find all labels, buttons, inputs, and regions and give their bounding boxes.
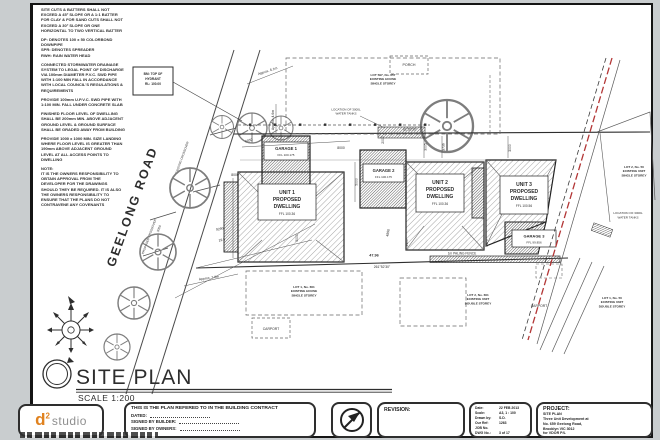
water-tanks-right-line1: LOCATION OF 3000L [613,211,643,215]
contract-dated-label: DATED: [131,413,147,418]
info-dwgno-label: DWG No.: [475,431,499,436]
unit3-line3: DWELLING [511,196,538,202]
carport-label-2: CARPORT [531,304,548,308]
lot1-50-line3: DOUBLE STOREY [599,304,627,308]
note-paragraph: SITE CUTS & BATTERS SHALL NOT EXCEED A 4… [41,7,125,33]
dim-8000b: 8000 [231,173,239,177]
dim-3005: 3005 [424,143,428,151]
dim-5000b: 5000 [295,234,299,242]
unit2-label: UNIT 2 [432,180,448,186]
signature-line [150,413,210,418]
dim-3736: 3736 [442,143,446,151]
note-paragraph: NOTE: IT IS THE OWNERS RESPONSIBILITY TO… [41,166,125,208]
north-arrow-box [331,402,372,438]
dim-9290: 9290 [216,226,224,231]
cropped-footer-text [20,432,158,438]
benchmark-line2: HYDRANT [145,77,161,81]
notes-column: SITE CUTS & BATTERS SHALL NOT EXCEED A 4… [41,7,125,211]
note-paragraph: FINISHED FLOOR LEVEL OF DWELLING SHALL B… [41,111,125,132]
boundary-length-label: 47.96 [369,254,379,258]
unit3-label: UNIT 3 [516,182,532,188]
garage2-label: GARAGE 2 [373,168,396,173]
unit1-ffl: FFL 100.36 [279,212,295,216]
info-dwgno-value: 3 of 17 [499,431,510,436]
tree-icon [211,116,234,139]
drawing-info-box: Date:22 FEB 2013 Scale:A3, 1 : 100 Drawn… [469,402,532,438]
unit1-line2: PROPOSED [273,197,302,203]
revision-box: REVISION: [377,402,465,438]
unit2-line3: DWELLING [427,194,454,200]
porch-label: PORCH [403,63,416,67]
dim-8000a: 8000 [337,146,345,150]
north-compass-icon [47,296,94,363]
tree-icon [170,168,210,208]
water-tanks-top-line2: WATER TANKS [335,112,356,116]
unit1-porch [224,182,238,252]
lot2-661-line3: DOUBLE STOREY [465,301,493,305]
contract-builder-label: SIGNED BY BUILDER: [131,419,176,424]
unit3-ffl: FFL 100.56 [516,204,532,208]
dim-3400: 3400 [405,239,409,247]
dim-2000: 2000 [381,136,385,144]
lot597-line3: SINGLE STOREY [370,81,396,85]
garage1-label: GARAGE 1 [275,146,298,151]
paling-fence-band [430,256,560,263]
note-paragraph: DP: DENOTES 100 x 50 COLORBOND DOWNPIPE … [41,37,125,58]
tree-icon [421,100,473,152]
garage1-ffl: FFL 100.175 [278,153,295,157]
logo-d-icon: d [35,410,45,429]
water-tank-strip-right [591,223,613,237]
drawing-title-label: SITE PLAN [76,366,192,389]
revision-label: REVISION: [384,407,458,413]
note-paragraph: CONNECTED STORMWATER DRAINAGE SYSTEM TO … [41,62,125,93]
benchmark-line3: RL: 100.00 [145,82,161,86]
neighbor-lot597: PORCH LOT 597, No. 657 EXISTING HOUSE SI… [286,56,500,138]
dim-approx46: Approx. 4.6m [271,110,275,130]
water-tank-strip [378,127,425,138]
garage3-ffl: FFL 99.856 [526,241,542,245]
drawing-scale-label: SCALE 1:200 [78,393,135,403]
unit1-line3: DWELLING [274,204,301,210]
lot2-50-line3: SINGLE STOREY [621,173,647,177]
contract-owners-label: SIGNED BY OWNERS: [131,426,177,431]
info-ourref-value: 1263 [499,421,507,426]
site-plan-sheet: GEELONG ROAD EXISTING CROSSOVER PROPOSED… [0,0,660,440]
unit2-ffl: FFL 100.36 [432,202,448,206]
tree-icon [104,334,130,360]
unit1-label: UNIT 1 [279,190,295,196]
unit2-line2: PROPOSED [426,187,455,193]
garage2-ffl: FFL 100.175 [375,175,392,179]
studio-logo: d2studio [35,411,87,430]
signature-line [179,419,239,424]
paling-fence-label: 1m PALING FENCE [448,252,476,256]
dim-5000a: 5000 [355,178,359,186]
benchmark-line1: BM: TOP OF [144,72,163,76]
lot1-661-line3: SINGLE STOREY [291,293,317,297]
garage3-label: GARAGE 3 [524,234,546,239]
boundary-bearing-label: 261°52'30" [374,265,391,269]
bottom-neighbors: LOT 1, No. 661 EXISTING HOUSE SINGLE STO… [246,264,562,338]
unit3-line2: PROPOSED [510,189,539,195]
proposed-buildings: GARAGE 1 FFL 100.175 UNIT 1 PROPOSED DWE… [224,136,556,262]
logo-studio-text: studio [52,414,87,428]
dim-4890: 4890 [385,229,390,237]
contract-heading: THIS IS THE PLAN REFERED TO IN THE BUILD… [131,406,309,411]
dim-3000-crossover: 3000 [156,224,162,232]
note-paragraph: PROVIDE 100mm U.P.V.C. SWD PIPE WITH 1:1… [41,97,125,107]
north-arrow-icon [337,405,367,435]
dim-approx61: Approx. 6.1m [257,66,278,76]
water-tanks-right-line2: WATER TANKS [617,216,638,220]
note-paragraph: PROVIDE 1000 x 1000 MIN. SIZE LANDING WH… [41,136,125,162]
carport-label-1: CARPORT [263,327,280,331]
project-box: PROJECT: SITE PLAN Three Unit Developmen… [536,402,653,438]
project-line: for VDOR P/L [543,431,646,436]
unit-divider [472,168,484,218]
signature-line [180,426,240,431]
logo-sup: 2 [45,412,49,421]
tree-icon [118,287,150,319]
dim-3470: 3470 [485,239,489,247]
drawing-title: SITE PLAN SCALE 1:200 [43,360,392,403]
dim-3000a: 3000 [508,144,512,152]
